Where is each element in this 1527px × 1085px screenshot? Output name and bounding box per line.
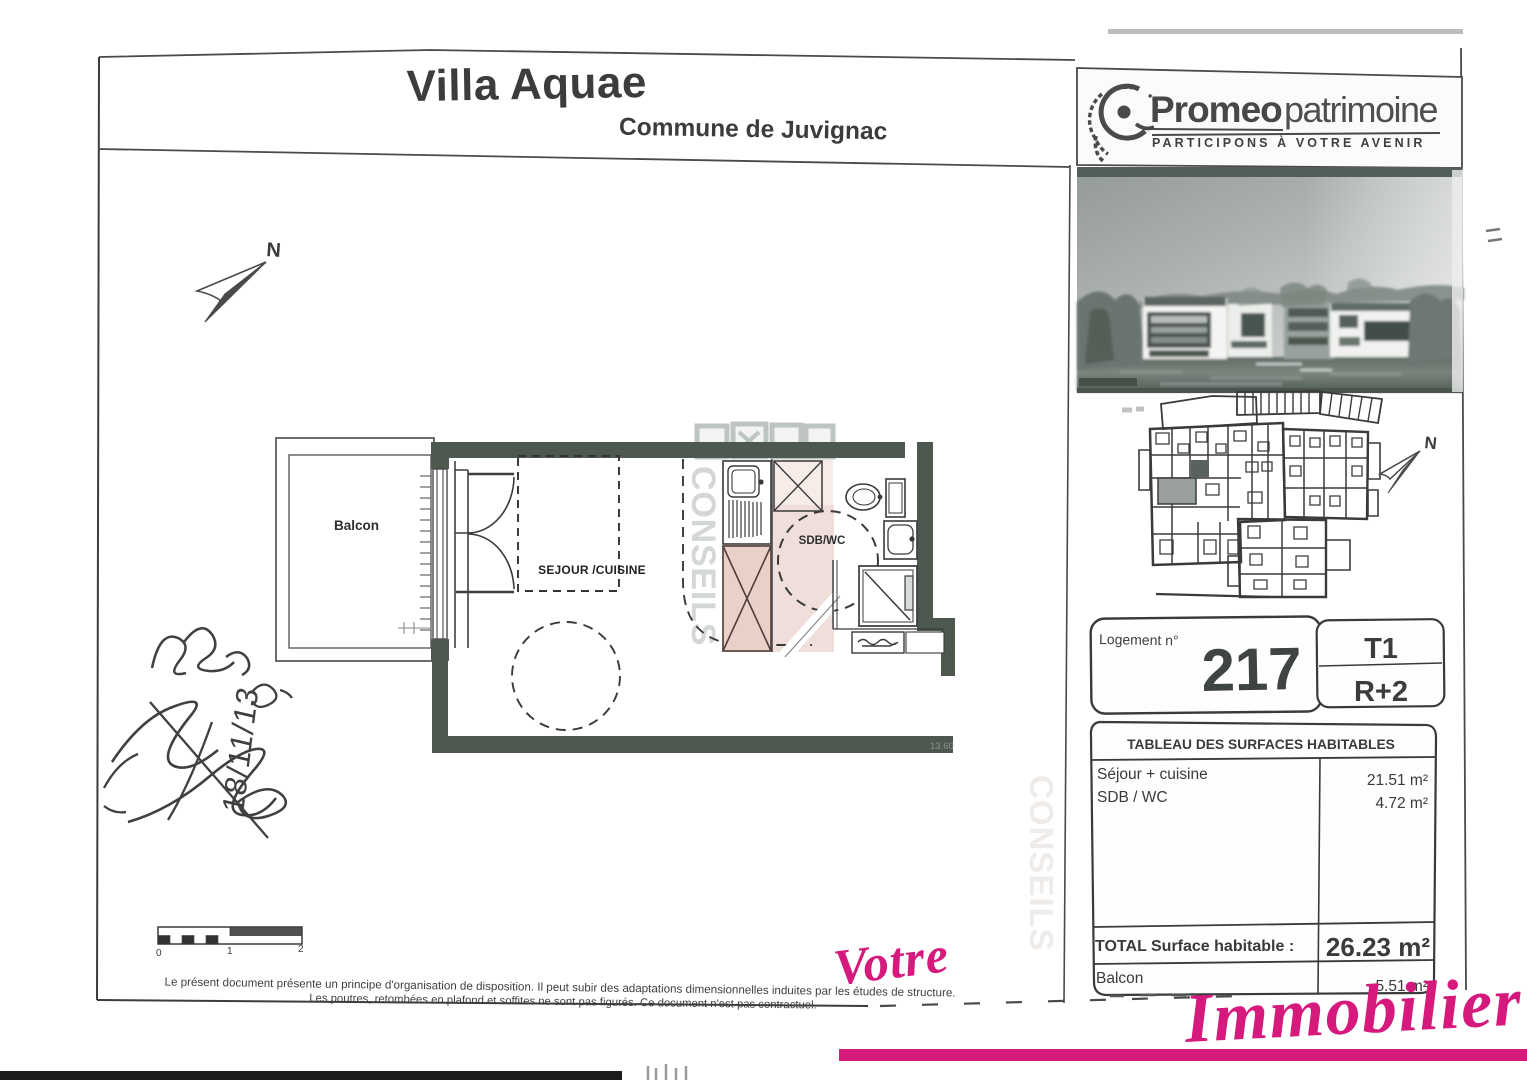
svg-text:Logement n°: Logement n° — [1099, 631, 1179, 648]
svg-text:R+2: R+2 — [1354, 676, 1408, 708]
svg-text:26.23 m²: 26.23 m² — [1326, 932, 1430, 962]
svg-text:N: N — [1424, 433, 1438, 453]
svg-text:Promeo: Promeo — [1150, 89, 1282, 130]
svg-text:CONSEILS: CONSEILS — [684, 466, 722, 646]
svg-text:13.60: 13.60 — [930, 741, 954, 752]
svg-text:Villa Aquae: Villa Aquae — [406, 58, 647, 111]
svg-text:Balcon: Balcon — [1096, 970, 1143, 987]
svg-text:2: 2 — [298, 944, 304, 955]
svg-text:Commune de Juvignac: Commune de Juvignac — [619, 114, 888, 146]
svg-text:SDB / WC: SDB / WC — [1097, 789, 1168, 806]
svg-text:4.72 m²: 4.72 m² — [1375, 795, 1428, 812]
svg-text:N: N — [266, 239, 282, 262]
svg-text:PARTICIPONS À VOTRE AVENIR: PARTICIPONS À VOTRE AVENIR — [1152, 135, 1425, 150]
svg-text:Séjour + cuisine: Séjour + cuisine — [1097, 766, 1208, 783]
svg-text:217: 217 — [1201, 635, 1302, 704]
svg-text:0: 0 — [156, 948, 162, 959]
svg-text:1: 1 — [227, 946, 233, 957]
svg-text:21.51 m²: 21.51 m² — [1367, 772, 1428, 789]
svg-text:patrimoine: patrimoine — [1284, 89, 1438, 130]
svg-text:TABLEAU DES SURFACES HABITABLE: TABLEAU DES SURFACES HABITABLES — [1127, 737, 1395, 752]
svg-text:T1: T1 — [1364, 633, 1398, 665]
svg-text:SEJOUR /CUISINE: SEJOUR /CUISINE — [538, 563, 646, 577]
svg-text:Balcon: Balcon — [334, 518, 379, 533]
svg-text:CONSEILS: CONSEILS — [1023, 775, 1060, 952]
svg-text:TOTAL Surface habitable :: TOTAL Surface habitable : — [1095, 938, 1294, 955]
svg-text:SDB/WC: SDB/WC — [799, 535, 846, 547]
